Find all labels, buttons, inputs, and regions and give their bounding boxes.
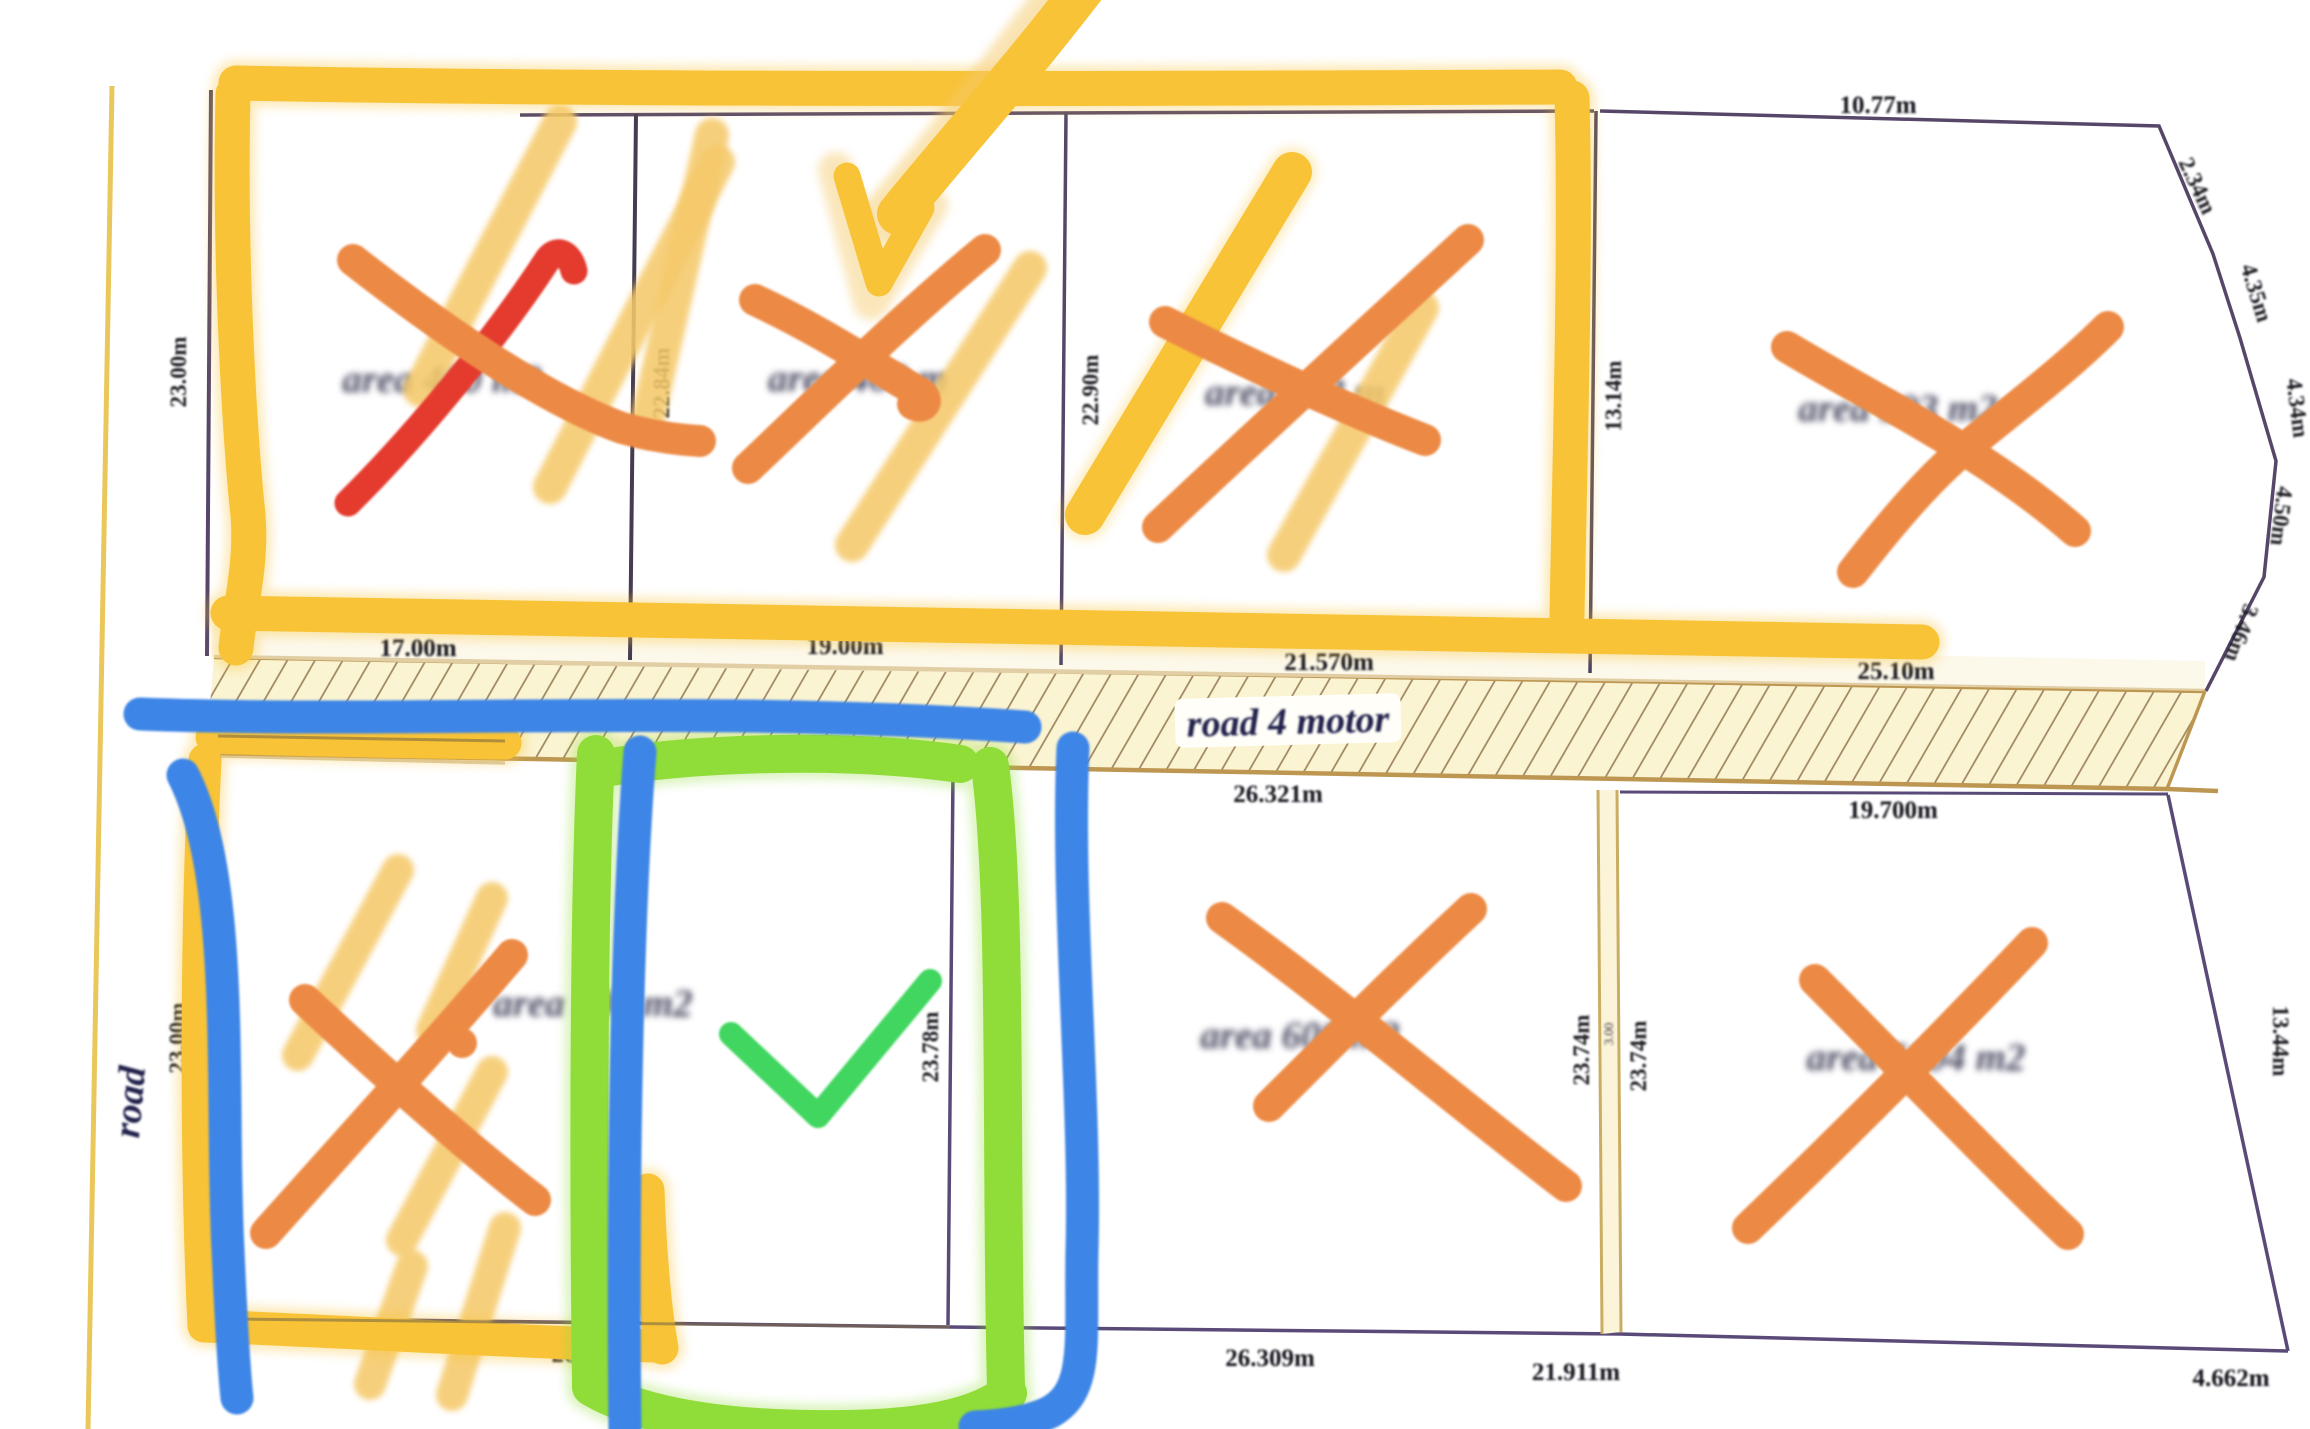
svg-text:10.77m: 10.77m	[1839, 92, 1916, 119]
svg-text:23.74m: 23.74m	[1626, 1021, 1651, 1092]
svg-text:26.309m: 26.309m	[1225, 1345, 1315, 1372]
svg-text:13.44m: 13.44m	[2268, 1006, 2293, 1077]
svg-text:road 4 motor: road 4 motor	[1186, 698, 1391, 745]
svg-text:23.78m: 23.78m	[918, 1012, 943, 1083]
svg-text:road: road	[106, 1063, 154, 1139]
svg-text:3.00: 3.00	[1601, 1023, 1616, 1046]
svg-text:21.911m: 21.911m	[1532, 1359, 1620, 1386]
svg-text:23.74m: 23.74m	[1569, 1015, 1594, 1086]
svg-text:4.662m: 4.662m	[2192, 1365, 2269, 1392]
svg-text:13.14m: 13.14m	[1601, 361, 1626, 432]
svg-text:23.00m: 23.00m	[166, 337, 191, 408]
svg-text:22.90m: 22.90m	[1078, 355, 1103, 426]
svg-text:19.700m: 19.700m	[1848, 797, 1938, 824]
svg-text:26.321m: 26.321m	[1233, 781, 1323, 808]
